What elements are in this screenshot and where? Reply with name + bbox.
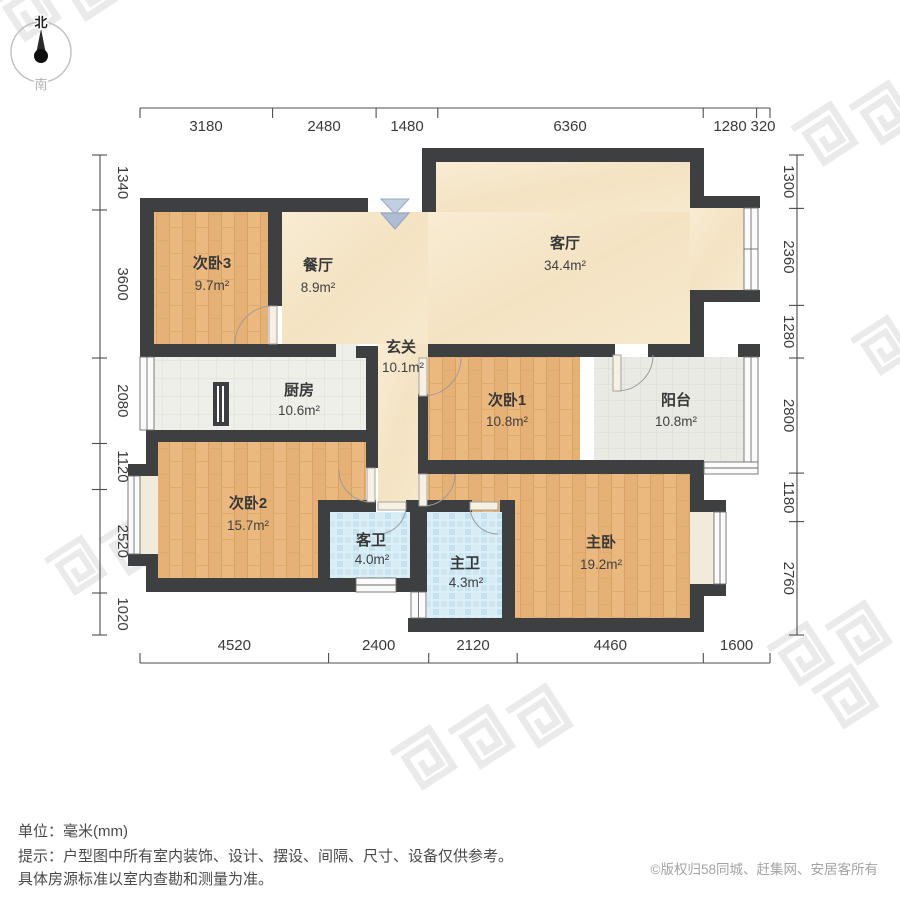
room-label-bedroom2: 次卧2 — [229, 494, 267, 512]
room-label-bedroom1: 次卧1 — [488, 391, 526, 409]
room-floor-living-upper — [436, 162, 690, 214]
dim-left-5: 2520 — [114, 525, 131, 558]
room-floor-dining — [282, 212, 428, 344]
dim-left-3: 2080 — [114, 384, 131, 417]
footer-tip-line2: 具体房源标准以室内查勘和测量为准。 — [18, 871, 273, 888]
room-label-kitchen: 厨房 — [284, 381, 314, 399]
kitchen-window — [140, 357, 154, 430]
room-label-balcony: 阳台 — [661, 391, 691, 409]
footer: 单位：毫米(mm) 提示：户型图中所有室内装饰、设计、摆设、间隔、尺寸、设备仅供… — [18, 822, 878, 888]
dim-top-1: 3180 — [189, 118, 222, 135]
dim-left-1: 1340 — [114, 166, 131, 199]
dim-left-6: 1020 — [114, 597, 131, 630]
room-area-master-bedroom: 19.2m² — [580, 557, 623, 572]
compass-north-label: 北 — [34, 15, 47, 30]
room-label-master-bedroom: 主卧 — [586, 533, 616, 551]
dim-left-4: 1120 — [114, 450, 131, 482]
balcony-right-window — [744, 357, 758, 462]
floor-plan-svg: 北 南 — [0, 0, 900, 900]
room-area-kitchen: 10.6m² — [278, 403, 321, 418]
dim-bottom-2: 2400 — [362, 637, 395, 654]
dim-bottom-4: 4460 — [594, 637, 627, 654]
dim-bottom-1: 4520 — [218, 637, 251, 654]
master-bay-fill — [690, 512, 714, 584]
dim-top-6: 320 — [750, 118, 775, 135]
room-area-master-bath: 4.3m² — [449, 575, 484, 590]
room-area-hallway: 10.1m² — [382, 360, 425, 375]
room-floor-living — [428, 212, 690, 344]
kitchen-doorway-floor — [336, 344, 358, 358]
guest-bath-window — [356, 578, 396, 592]
master-bath-window — [411, 592, 426, 618]
dim-right-5: 1180 — [780, 481, 797, 513]
dim-right-4: 2800 — [780, 399, 797, 432]
dim-bottom-5: 1600 — [720, 637, 753, 654]
footer-unit-note: 单位：毫米(mm) — [18, 822, 128, 840]
room-area-dining: 8.9m² — [301, 280, 336, 295]
compass-south-label: 南 — [34, 77, 47, 92]
dim-top-4: 6360 — [553, 118, 586, 135]
room-area-balcony: 10.8m² — [655, 414, 698, 429]
room-label-guest-bath: 客卫 — [355, 531, 386, 549]
room-floor-living-bay — [690, 208, 744, 290]
footer-tip-line1: 提示：户型图中所有室内装饰、设计、摆设、间隔、尺寸、设备仅供参考。 — [18, 848, 513, 865]
dim-right-6: 2760 — [780, 562, 797, 595]
dim-right-3: 1280 — [780, 315, 797, 348]
dim-left-2: 3600 — [114, 267, 131, 300]
room-area-bedroom2: 15.7m² — [227, 518, 270, 533]
room-label-master-bath: 主卫 — [450, 554, 480, 572]
dim-right-1: 1300 — [780, 165, 797, 198]
room-label-dining: 餐厅 — [303, 256, 333, 274]
room-label-hallway: 玄关 — [386, 338, 416, 356]
kitchen-pillar — [213, 382, 229, 426]
master-bay-window — [714, 512, 726, 584]
dim-right-2: 2360 — [780, 240, 797, 273]
bedroom2-bay-fill — [140, 476, 158, 554]
floor-plan-page: 北 南 — [0, 0, 900, 900]
balcony-bottom-window — [704, 462, 758, 474]
dimension-chain-top: 3180 2480 1480 6360 1280 320 — [140, 108, 776, 135]
room-area-guest-bath: 4.0m² — [355, 552, 390, 567]
dimension-chain-right: 1300 2360 1280 2800 1180 2760 — [780, 155, 804, 635]
dim-top-3: 1480 — [390, 118, 423, 135]
room-label-living: 客厅 — [549, 234, 580, 252]
room-area-bedroom3: 9.7m² — [195, 278, 230, 293]
footer-copyright: ©版权归58同城、赶集网、安居客所有 — [651, 861, 878, 877]
room-floor-kitchen — [154, 357, 366, 430]
dim-top-2: 2480 — [307, 118, 340, 135]
room-area-bedroom1: 10.8m² — [486, 414, 529, 429]
floors — [140, 162, 744, 618]
room-label-bedroom3: 次卧3 — [193, 254, 231, 272]
living-bay-window — [744, 208, 758, 290]
compass-needle-dot — [34, 49, 48, 63]
dim-bottom-3: 2120 — [456, 637, 489, 654]
dimension-chain-bottom: 4520 2400 2120 4460 1600 — [140, 637, 770, 663]
dim-top-5: 1280 — [713, 118, 746, 135]
room-area-living: 34.4m² — [544, 258, 587, 273]
